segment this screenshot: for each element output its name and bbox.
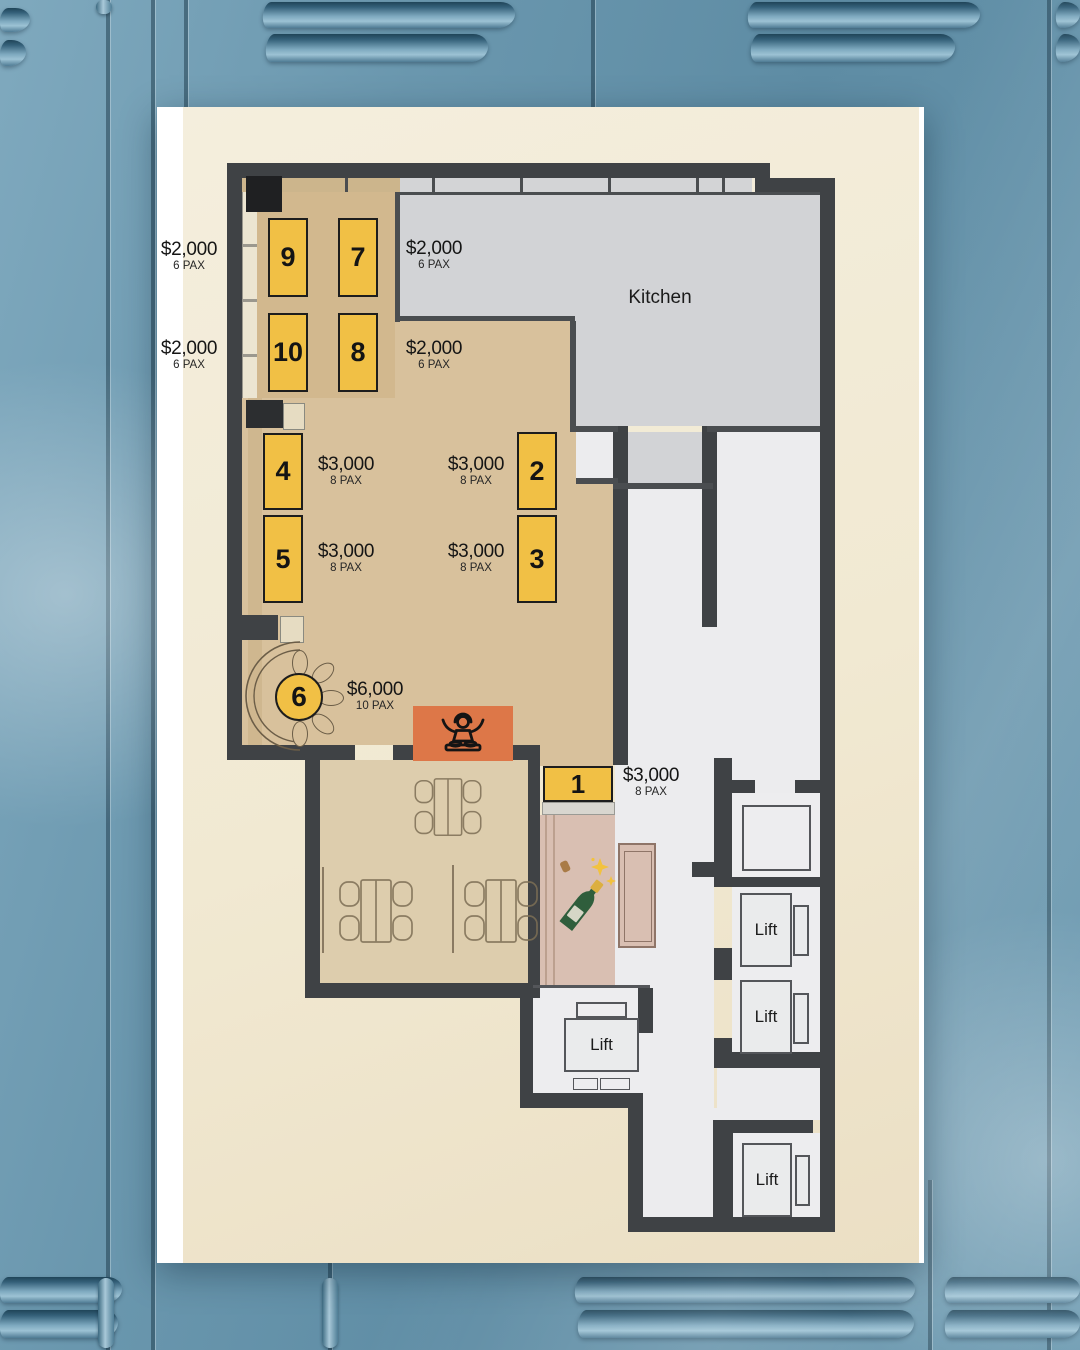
wall-shaft-top: [795, 780, 820, 793]
lift-label: Lift: [755, 1007, 778, 1027]
region-kitchen: [576, 321, 820, 426]
ledge-divider: [696, 178, 699, 192]
wall-lift-step: [714, 948, 732, 980]
lift-door-slit: [793, 993, 809, 1044]
kitchen-border: [395, 192, 400, 322]
locker-hinge: [322, 1278, 338, 1348]
kitchen-border: [570, 321, 576, 427]
lift-label: Lift: [755, 920, 778, 940]
locker-vent-slat: [1055, 34, 1080, 62]
wall-dining-bottom: [305, 983, 540, 998]
pax-text: 6 PAX: [150, 359, 228, 372]
region-kitchen: [618, 432, 707, 483]
price-text: $3,000: [616, 765, 686, 786]
locker-vent-slat: [1055, 2, 1080, 28]
floorplan-poster-scene: Lift Lift Lift Lift: [0, 0, 1080, 1350]
pax-text: 10 PAX: [341, 700, 409, 713]
price-label-table-5: $3,000 8 PAX: [314, 541, 378, 575]
kitchen-border: [395, 316, 575, 321]
wall-dining-left: [305, 745, 320, 998]
kitchen-border: [576, 478, 618, 484]
kitchen-border: [707, 426, 820, 432]
pax-text: 8 PAX: [444, 475, 508, 488]
locker-hinge: [98, 1278, 114, 1348]
lobby-threshold: [600, 1078, 630, 1090]
locker-vent-slat: [944, 1277, 1080, 1303]
locker-vent-slat: [0, 40, 27, 66]
price-label-table-2: $3,000 8 PAX: [444, 454, 508, 488]
lobby-panel-outline: [576, 1002, 627, 1018]
ledge-divider: [520, 178, 523, 192]
wall-mid-vertical: [613, 426, 628, 765]
dining-separator: [452, 865, 454, 953]
wall-lift-left: [713, 1120, 733, 1223]
wall-column-block: [235, 615, 278, 640]
wall-top: [227, 163, 770, 178]
lift-1: Lift: [740, 893, 792, 967]
region-service-nook: [576, 432, 613, 478]
lift-door-slit: [793, 905, 809, 956]
locker-hinge: [96, 0, 112, 14]
wall-right: [820, 178, 835, 1232]
ledge-divider: [432, 178, 435, 192]
region-corridor: [628, 627, 820, 760]
table-1: 1: [543, 766, 613, 802]
entry-door-leaf: [624, 851, 652, 942]
locker-seam: [151, 0, 155, 1350]
wall-shaft-top: [732, 780, 755, 793]
price-label-table-8: $2,000 6 PAX: [402, 338, 466, 372]
pax-text: 6 PAX: [402, 359, 466, 372]
price-text: $2,000: [150, 338, 228, 359]
table-6: 6: [275, 673, 323, 721]
locker-vent-slat: [944, 1310, 1080, 1338]
wall-bottom-left: [628, 1108, 643, 1232]
price-text: $2,000: [402, 338, 466, 359]
region-corridor: [717, 1068, 820, 1120]
region-main-dining: [540, 745, 613, 766]
pax-text: 8 PAX: [314, 562, 378, 575]
table-3: 3: [517, 515, 557, 603]
lobby-threshold: [573, 1078, 598, 1090]
locker-vent-slat: [265, 34, 490, 62]
locker-vent-slat: [262, 2, 517, 28]
pax-text: 6 PAX: [150, 260, 228, 273]
price-text: $3,000: [444, 454, 508, 475]
wall-lift-divider: [714, 1052, 823, 1068]
price-label-table-4: $3,000 8 PAX: [314, 454, 378, 488]
pax-text: 6 PAX: [402, 259, 466, 272]
table-9: 9: [268, 218, 308, 297]
dining-separator: [322, 867, 324, 953]
ledge-divider: [722, 178, 725, 192]
lift-door-slit: [795, 1155, 810, 1206]
price-label-left-2: $2,000 6 PAX: [150, 338, 228, 372]
table-5: 5: [263, 515, 303, 603]
kitchen-border: [400, 192, 820, 195]
locker-vent-slat: [750, 34, 957, 62]
wall-lobby-left: [520, 988, 533, 1108]
locker-vent-slat: [574, 1277, 917, 1303]
table-4: 4: [263, 433, 303, 510]
wall-service-box: [283, 403, 305, 430]
table-sketch: [455, 868, 547, 956]
wall-lobby-bottom: [520, 1093, 643, 1108]
lift-shaft-outline: [742, 805, 811, 871]
wall-corridor-stub: [702, 426, 717, 627]
dj-booth-icon: [438, 711, 488, 757]
ledge-divider: [345, 178, 348, 192]
lift-lobby: Lift: [564, 1018, 639, 1072]
price-label-table-1: $3,000 8 PAX: [616, 765, 686, 799]
wall-column-block: [246, 176, 282, 212]
table-10: 10: [268, 313, 308, 392]
price-label-table-3: $3,000 8 PAX: [444, 541, 508, 575]
table-sketch: [405, 768, 491, 848]
price-label-table-6: $6,000 10 PAX: [341, 679, 409, 713]
table-2: 2: [517, 432, 557, 510]
price-label-left-1: $2,000 6 PAX: [150, 239, 228, 273]
champagne-bottle-icon: [548, 856, 618, 940]
price-label-table-7: $2,000 6 PAX: [402, 238, 466, 272]
locker-vent-slat: [747, 2, 982, 28]
pax-text: 8 PAX: [444, 562, 508, 575]
pax-text: 8 PAX: [314, 475, 378, 488]
locker-vent-slat: [577, 1310, 916, 1338]
ledge-divider: [608, 178, 611, 192]
lift-label: Lift: [590, 1035, 613, 1055]
kitchen-border: [570, 426, 618, 432]
price-text: $6,000: [341, 679, 409, 700]
pax-text: 8 PAX: [616, 786, 686, 799]
region-corridor: [628, 489, 702, 627]
region-corridor: [717, 432, 820, 627]
price-text: $2,000: [402, 238, 466, 259]
kitchen-label: Kitchen: [605, 287, 715, 309]
table-7: 7: [338, 218, 378, 297]
locker-seam: [1047, 0, 1051, 1350]
wall-lobby-top-line: [533, 985, 650, 988]
wall-lobby-right: [638, 988, 653, 1033]
doorway-threshold: [542, 802, 615, 815]
lift-3: Lift: [742, 1143, 792, 1217]
price-text: $3,000: [444, 541, 508, 562]
chair-petal: [292, 721, 308, 747]
lift-2: Lift: [740, 980, 792, 1054]
region-corridor: [643, 1108, 717, 1217]
locker-seam: [928, 1180, 932, 1350]
price-text: $2,000: [150, 239, 228, 260]
price-text: $3,000: [314, 454, 378, 475]
locker-vent-slat: [0, 8, 31, 32]
region-ledge-gray: [400, 178, 752, 192]
wall-column-block: [246, 400, 283, 428]
locker-seam: [106, 0, 110, 1350]
table-8: 8: [338, 313, 378, 392]
lift-label: Lift: [756, 1170, 779, 1190]
wall-shaft-left: [714, 758, 732, 877]
table-sketch: [330, 868, 422, 956]
price-text: $3,000: [314, 541, 378, 562]
wall-bottom: [628, 1217, 835, 1232]
kitchen-border: [613, 483, 713, 489]
